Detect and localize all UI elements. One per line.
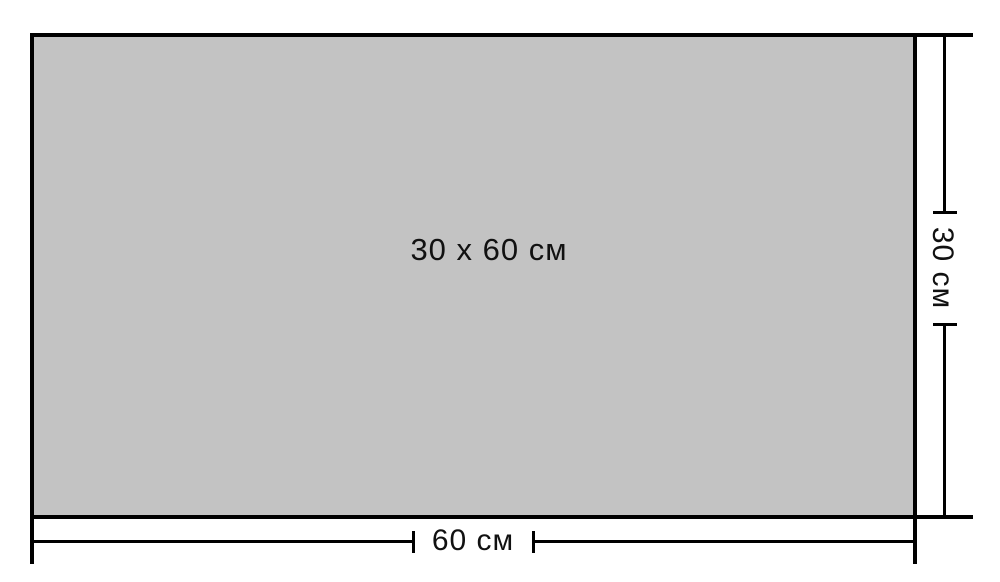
tile-size-label: 30 x 60 см xyxy=(410,232,567,268)
width-dimension-label: 60 см xyxy=(432,524,514,558)
height-dimension-line-top-segment xyxy=(943,37,946,213)
tile-rectangle xyxy=(30,33,917,519)
height-dimension-label: 30 см xyxy=(925,227,959,309)
width-dimension-tick-left xyxy=(412,531,415,553)
height-dimension-tick-top xyxy=(933,211,957,214)
width-dimension-tick-right xyxy=(532,531,535,553)
width-dimension-line-left-segment xyxy=(32,540,413,543)
height-dimension-line-bottom-segment xyxy=(943,324,946,515)
dimension-diagram: 30 x 60 см 60 см 30 см xyxy=(0,0,1000,582)
height-extension-line-bottom xyxy=(917,515,973,519)
height-dimension-tick-bottom xyxy=(933,323,957,326)
width-dimension-line-right-segment xyxy=(533,540,915,543)
